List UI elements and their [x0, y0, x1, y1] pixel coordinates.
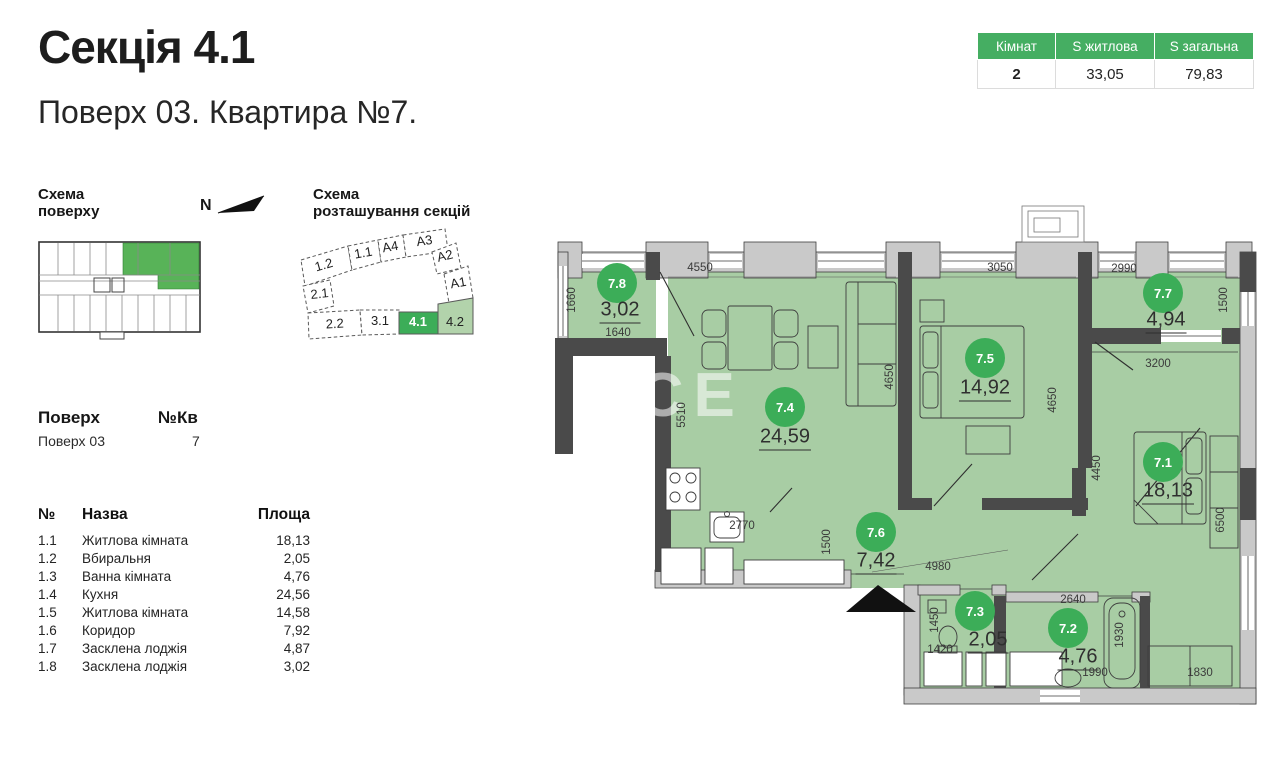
summary-total-value: 79,83: [1155, 60, 1254, 89]
dimension-label: 5510: [676, 402, 688, 428]
table-row: 1.5Житлова кімната14,58: [38, 603, 310, 621]
summary-rooms-value: 2: [978, 60, 1056, 89]
section-cell-label: 2.2: [325, 316, 344, 332]
room-number-badge: 7.3: [955, 591, 995, 631]
page-title: Секція 4.1: [38, 20, 254, 74]
room-area-label: 4,94: [1146, 309, 1187, 334]
summary-col-living: S житлова: [1056, 33, 1155, 60]
section-cell-label: A1: [449, 274, 467, 292]
section-cell-label: 2.1: [310, 285, 330, 302]
rooms-col-name: Назва: [82, 506, 235, 531]
dimension-label: 3050: [987, 262, 1013, 274]
room-number-badge: 7.2: [1048, 608, 1088, 648]
summary-table: Кімнат S житлова S загальна 2 33,05 79,8…: [977, 32, 1254, 89]
page-subtitle: Поверх 03. Квартира №7.: [38, 94, 417, 131]
table-row: 1.7Засклена лоджія4,87: [38, 639, 310, 657]
section-scheme-label: Схема розташування секцій: [313, 186, 470, 221]
apt-header: №Кв: [158, 408, 198, 428]
section-cell-label: A4: [381, 238, 399, 256]
table-row: 1.8Засклена лоджія3,02: [38, 657, 310, 675]
floorplan-page: Секція 4.1 Поверх 03. Квартира №7. Кімна…: [0, 0, 1280, 757]
floor-value: Поверх 03: [38, 433, 105, 449]
rooms-col-num: №: [38, 506, 82, 531]
dimension-label: 1500: [1218, 287, 1230, 313]
room-area-label: 24,59: [759, 426, 811, 451]
table-row: 1.2Вбиральня2,05: [38, 549, 310, 567]
dimension-label: 4980: [925, 561, 951, 573]
section-cell-label: 4.2: [446, 314, 464, 329]
dimension-label: 6500: [1215, 507, 1227, 533]
table-row: 1.4Кухня24,56: [38, 585, 310, 603]
dimension-label: 2770: [729, 520, 755, 532]
dimension-label: 1500: [821, 529, 833, 555]
dimension-label: 1660: [566, 287, 578, 313]
floor-header: Поверх: [38, 408, 100, 428]
section-cell-label: 4.1: [409, 314, 427, 329]
dimension-label: 1930: [1114, 622, 1126, 648]
dimension-label: 1640: [605, 327, 631, 339]
room-number-badge: 7.8: [597, 263, 637, 303]
room-area-label: 18,13: [1142, 480, 1194, 505]
room-area-label: 3,02: [600, 299, 641, 324]
room-number-badge: 7.5: [965, 338, 1005, 378]
section-cell-label: 1.1: [353, 244, 373, 262]
north-indicator: N: [198, 190, 270, 223]
section-cell-label: 3.1: [371, 313, 389, 328]
summary-col-rooms: Кімнат: [978, 33, 1056, 60]
table-row: 1.6Коридор7,92: [38, 621, 310, 639]
room-area-label: 7,42: [856, 550, 897, 575]
floor-scheme-label: Схема поверху: [38, 186, 99, 221]
rooms-table: № Назва Площа 1.1Житлова кімната18,131.2…: [38, 506, 310, 675]
room-number-badge: 7.1: [1143, 442, 1183, 482]
dimension-label: 1830: [1187, 667, 1213, 679]
technical-shaft-drawing: [1022, 206, 1084, 242]
table-row: 1.3Ванна кімната4,76: [38, 567, 310, 585]
dimension-label: 4450: [1091, 455, 1103, 481]
dimension-label: 4650: [1047, 387, 1059, 413]
dimension-label: 2640: [1060, 594, 1086, 606]
summary-living-value: 33,05: [1056, 60, 1155, 89]
watermark: NCE: [584, 360, 745, 431]
rooms-col-area: Площа: [235, 506, 310, 531]
summary-col-total: S загальна: [1155, 33, 1254, 60]
dimension-label: 3200: [1145, 358, 1171, 370]
room-number-badge: 7.7: [1143, 273, 1183, 313]
section-scheme-map: 1.21.1A4A3A2A12.12.23.14.14.2: [295, 226, 480, 344]
room-area-label: 2,05: [968, 629, 1009, 654]
floor-scheme-map: [38, 238, 205, 340]
north-arrow-icon: N: [198, 190, 270, 218]
room-number-badge: 7.6: [856, 512, 896, 552]
dimension-label: 1990: [1082, 667, 1108, 679]
room-number-badge: 7.4: [765, 387, 805, 427]
dimension-label: 1420: [927, 644, 953, 656]
apt-value: 7: [192, 433, 200, 449]
dimension-label: 2990: [1111, 263, 1137, 275]
dimension-label: 1450: [929, 607, 941, 633]
dimension-label: 4650: [884, 364, 896, 390]
dimension-label: 4550: [687, 262, 713, 274]
section-cell-label: A3: [415, 232, 433, 249]
table-row: 1.1Житлова кімната18,13: [38, 531, 310, 549]
room-area-label: 14,92: [959, 377, 1011, 402]
north-letter: N: [200, 197, 212, 214]
